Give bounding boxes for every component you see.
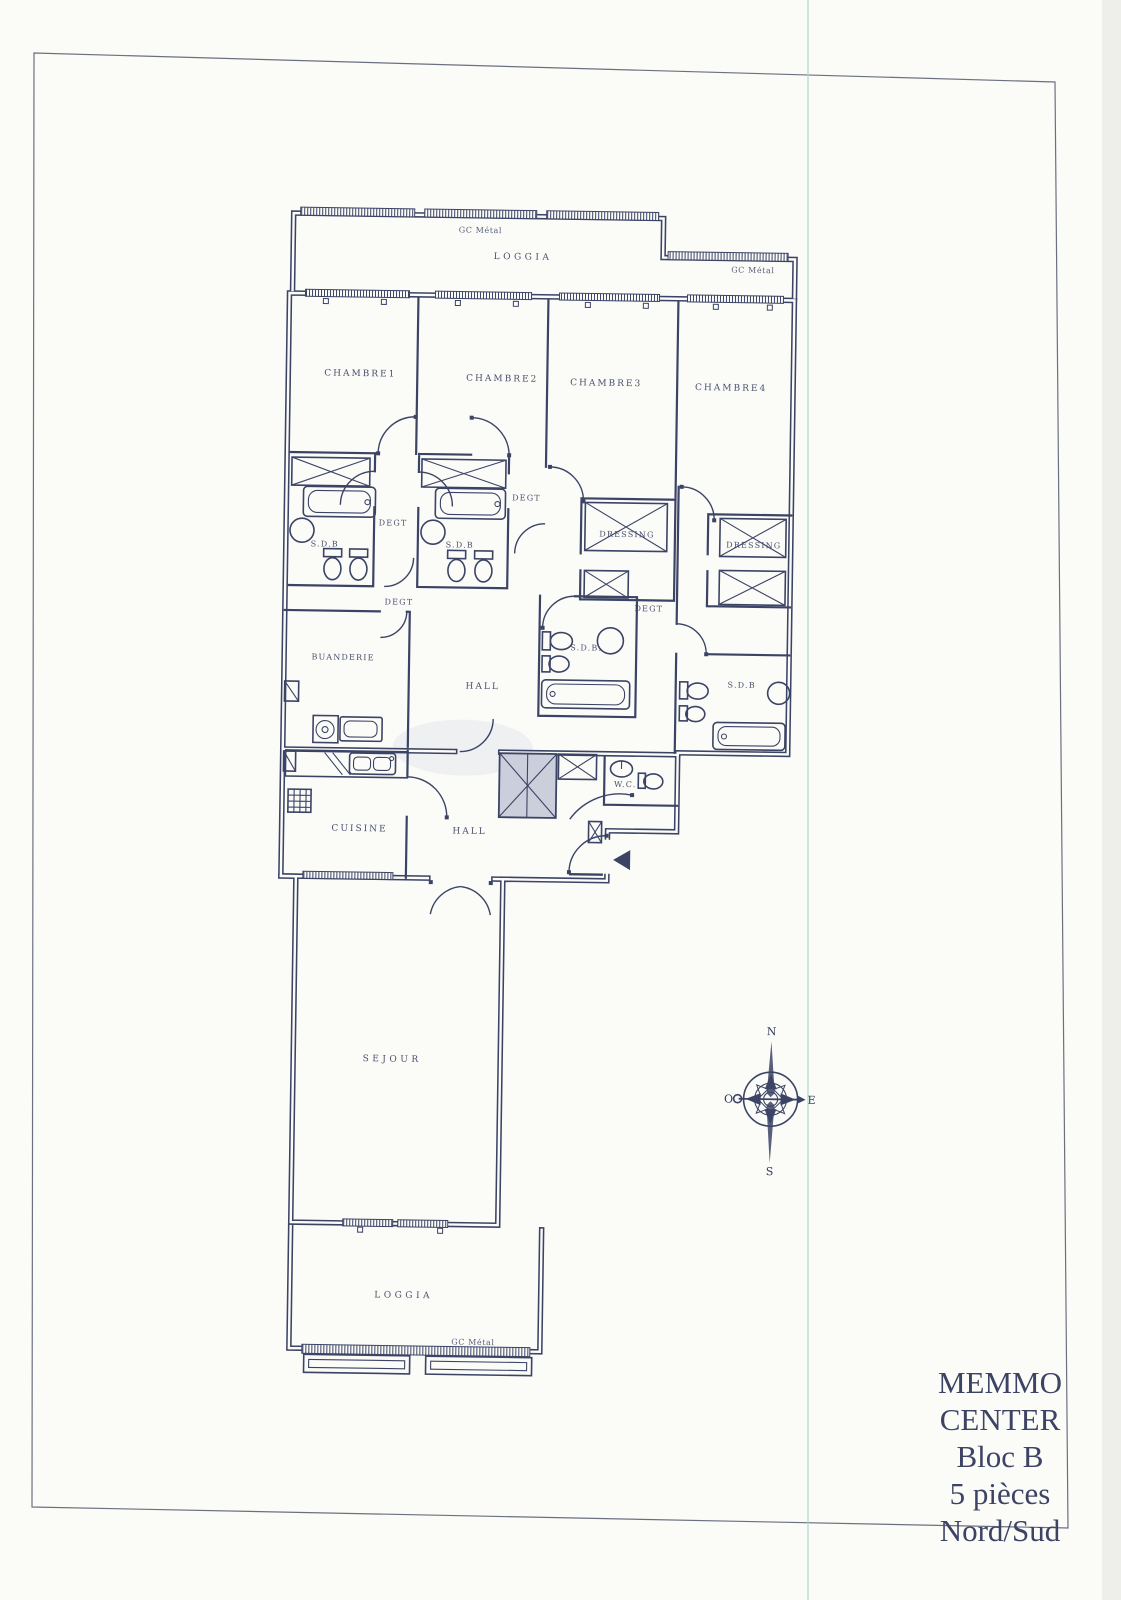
room-label-buanderie: BUANDERIE (311, 652, 374, 662)
bidet (542, 656, 569, 672)
window (687, 295, 783, 303)
closet (292, 457, 370, 486)
entrance-opening (600, 840, 615, 874)
room-label-chambre4: CHAMBRE4 (695, 383, 767, 394)
annotation-gc-metal-bottom: GC Métal (451, 1338, 494, 1348)
bathtub (303, 486, 375, 517)
room-label-sdb1: S.D.B (311, 539, 339, 548)
bathtub (713, 722, 785, 750)
entrance-arrow (613, 850, 630, 870)
bathtub (541, 680, 629, 709)
compass-label-south: S (766, 1165, 774, 1178)
compass-needle-south (766, 1101, 775, 1163)
washbasin (421, 520, 445, 544)
room-label-loggia-bottom: LOGGIA (374, 1290, 433, 1301)
window (303, 871, 393, 879)
title-line-project2: CENTER (912, 1401, 1088, 1438)
loggia-railing (425, 209, 537, 219)
title-line-pieces: 5 pièces (912, 1475, 1088, 1512)
closet (720, 518, 787, 557)
closet (584, 570, 628, 598)
laundry-sink (340, 717, 382, 742)
bidet (679, 706, 705, 722)
closet (499, 753, 557, 818)
washing-machine (313, 715, 338, 742)
room-label-loggia-top: LOGGIA (494, 252, 553, 263)
toilet (447, 550, 465, 581)
scan-edge-shadow (1102, 0, 1121, 1600)
scanned-floor-plan-page: LOGGIA GC Métal GC Métal CHAMBRE1 CHAMBR… (0, 0, 1121, 1600)
loggia-railing (547, 211, 659, 221)
compass-label-east: E (807, 1094, 815, 1107)
compass-rose: N E S O (723, 1025, 817, 1179)
room-label-cuisine: CUISINE (331, 824, 387, 835)
toilet (323, 549, 341, 580)
window (343, 1219, 393, 1227)
kitchen-sink (349, 753, 395, 775)
compass-label-west: O (724, 1093, 733, 1106)
door-arcs (334, 414, 717, 919)
closet (422, 459, 506, 488)
title-line-project: MEMMO (912, 1364, 1088, 1401)
loggia-railing (301, 207, 415, 217)
room-label-degt3: DEGT (384, 597, 413, 606)
title-line-bloc: Bloc B (912, 1438, 1088, 1475)
window (559, 293, 659, 301)
room-label-sdb3: S.D.B. (570, 643, 602, 652)
closet (585, 502, 668, 551)
room-label-sdb4: S.D.B (728, 681, 756, 690)
toilet (542, 632, 572, 650)
closet (558, 754, 596, 780)
annotation-gc-metal-top: GC Métal (459, 226, 502, 236)
title-block: MEMMO CENTER Bloc B 5 pièces Nord/Sud (912, 1364, 1088, 1549)
room-label-chambre3: CHAMBRE3 (570, 378, 642, 389)
room-label-chambre1: CHAMBRE1 (324, 369, 396, 380)
bidet (474, 551, 492, 582)
room-label-wc: W.C. (614, 780, 637, 789)
loggia-railing (668, 252, 788, 262)
room-label-degt2: DEGT (512, 493, 541, 502)
window (398, 1220, 448, 1228)
toilet (638, 773, 663, 789)
room-label-hall-upper: HALL (465, 682, 499, 693)
room-label-dressing2: DRESSING (726, 541, 781, 551)
room-label-hall-lower: HALL (452, 826, 486, 837)
loggia-planters (304, 1354, 532, 1375)
floor-plan-drawing: LOGGIA GC Métal GC Métal CHAMBRE1 CHAMBR… (0, 0, 1121, 1600)
bathtub (435, 488, 505, 519)
apartment-plan: LOGGIA GC Métal GC Métal CHAMBRE1 CHAMBR… (274, 207, 829, 1380)
bidet (349, 549, 367, 580)
room-label-sejour: SEJOUR (363, 1054, 422, 1065)
window (435, 291, 531, 299)
compass-needle-north (767, 1041, 776, 1097)
closet (719, 570, 785, 605)
compass-east-arrow (798, 1096, 806, 1104)
annotation-gc-metal-right: GC Métal (731, 266, 774, 276)
stove (288, 789, 311, 812)
title-line-orientation: Nord/Sud (912, 1512, 1088, 1549)
toilet (680, 682, 709, 699)
room-label-dressing1: DRESSING (599, 530, 654, 540)
window (305, 289, 409, 298)
room-label-sdb2: S.D.B (446, 540, 474, 549)
compass-label-north: N (767, 1025, 777, 1038)
room-label-degt1: DEGT (379, 518, 408, 527)
room-label-chambre2: CHAMBRE2 (466, 374, 538, 385)
room-label-degt4: DEGT (634, 604, 663, 613)
